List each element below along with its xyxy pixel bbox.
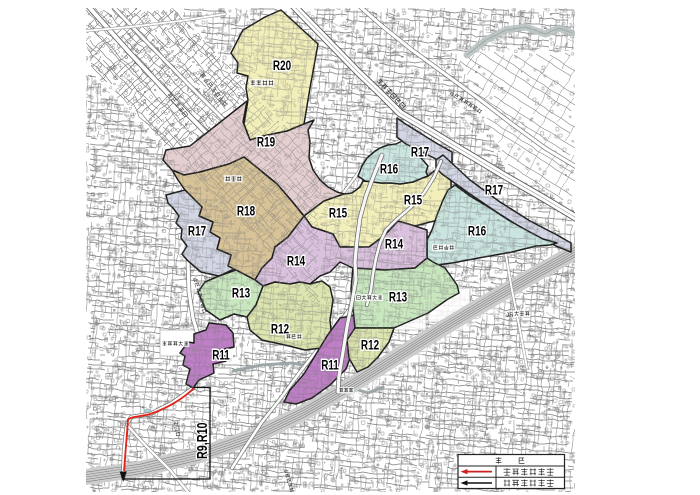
svg-text:R13: R13 — [232, 286, 251, 301]
svg-text:R17: R17 — [485, 183, 504, 198]
svg-text:R17: R17 — [188, 224, 207, 239]
svg-text:R15: R15 — [329, 206, 348, 221]
svg-text:R15: R15 — [404, 193, 423, 208]
svg-text:R11: R11 — [212, 348, 230, 363]
svg-text:R14: R14 — [385, 237, 404, 252]
svg-text:R16: R16 — [468, 224, 487, 239]
svg-text:R20: R20 — [273, 59, 292, 74]
svg-text:R16: R16 — [380, 162, 399, 177]
svg-text:R9,R10: R9,R10 — [193, 422, 210, 459]
svg-text:R14: R14 — [287, 254, 306, 269]
svg-text:R19: R19 — [257, 135, 276, 150]
svg-text:R17: R17 — [411, 145, 430, 160]
svg-text:R13: R13 — [389, 290, 408, 305]
svg-text:R11: R11 — [321, 358, 339, 373]
svg-text:R18: R18 — [237, 204, 256, 219]
svg-text:R12: R12 — [361, 338, 380, 353]
